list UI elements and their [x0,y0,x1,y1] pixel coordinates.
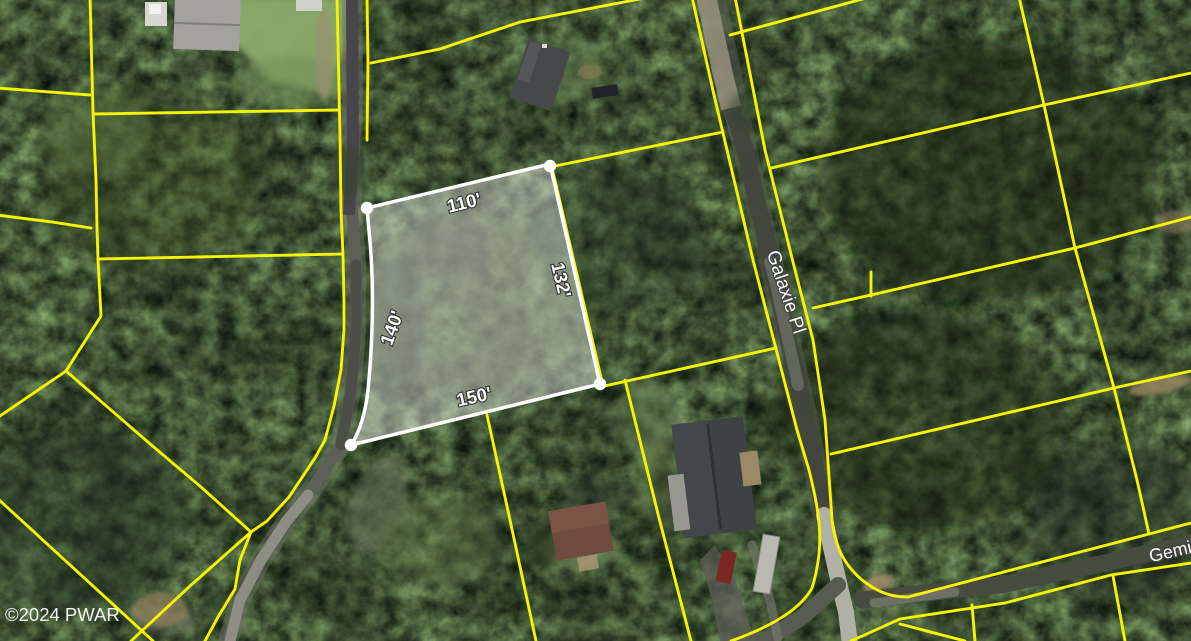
svg-text:©2024 PWAR: ©2024 PWAR [5,604,120,625]
